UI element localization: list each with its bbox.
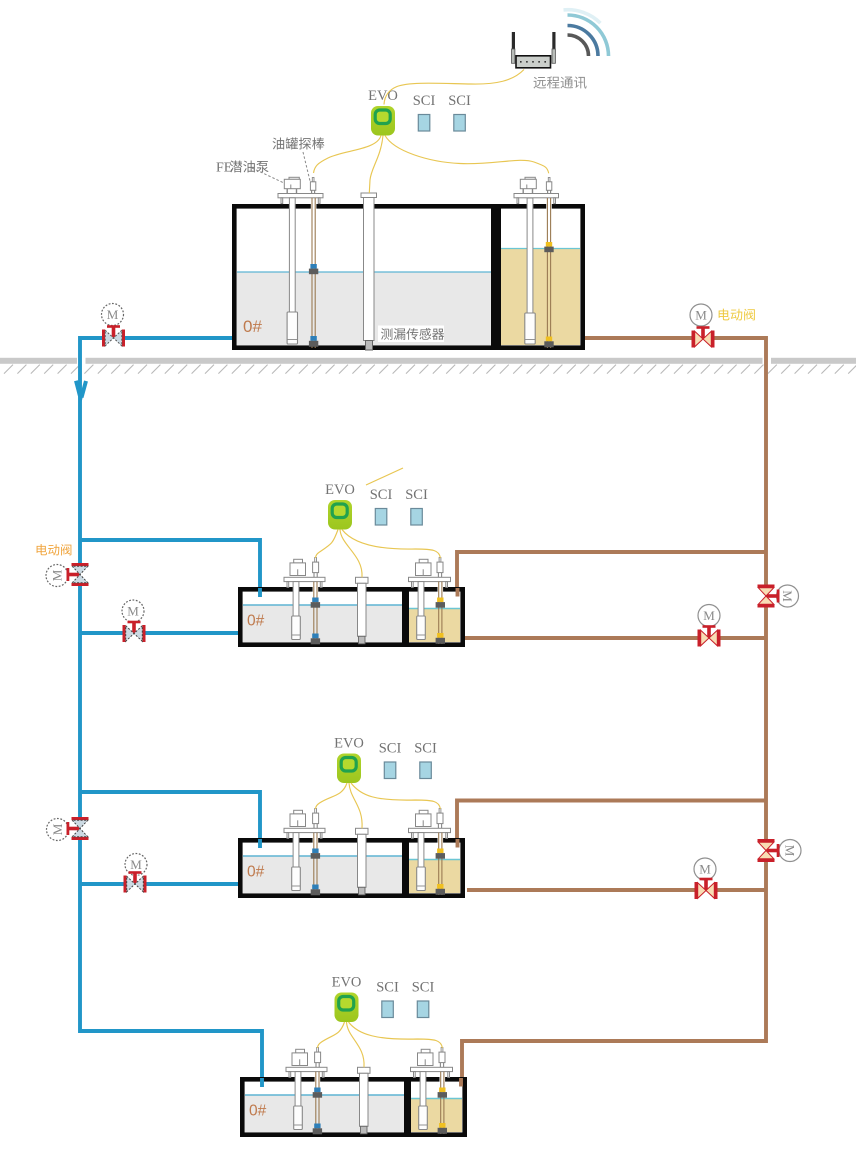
svg-text:SCI: SCI — [370, 487, 393, 503]
svg-text:M: M — [130, 857, 142, 872]
svg-text:M: M — [50, 823, 65, 835]
svg-text:SCI: SCI — [376, 980, 399, 996]
svg-text:0#: 0# — [247, 613, 265, 630]
svg-text:M: M — [50, 569, 65, 581]
svg-text:M: M — [783, 845, 798, 857]
svg-text:0#: 0# — [247, 864, 265, 881]
svg-text:M: M — [703, 608, 715, 623]
svg-text:SCI: SCI — [379, 741, 402, 757]
svg-text:EVO: EVO — [334, 736, 364, 752]
svg-text:FE: FE — [216, 161, 232, 176]
svg-text:EVO: EVO — [368, 88, 398, 104]
svg-text:M: M — [127, 604, 139, 619]
svg-text:SCI: SCI — [405, 487, 428, 503]
svg-text:EVO: EVO — [325, 482, 355, 498]
svg-text:M: M — [699, 862, 711, 877]
svg-text:0#: 0# — [249, 1103, 267, 1120]
svg-text:M: M — [107, 307, 119, 322]
svg-text:EVO: EVO — [332, 975, 362, 991]
svg-text:SCI: SCI — [412, 980, 435, 996]
svg-text:M: M — [695, 308, 707, 323]
svg-text:SCI: SCI — [413, 93, 436, 109]
svg-text:0#: 0# — [243, 317, 262, 336]
svg-text:SCI: SCI — [448, 93, 471, 109]
svg-text:SCI: SCI — [414, 741, 437, 757]
svg-text:M: M — [780, 590, 795, 602]
